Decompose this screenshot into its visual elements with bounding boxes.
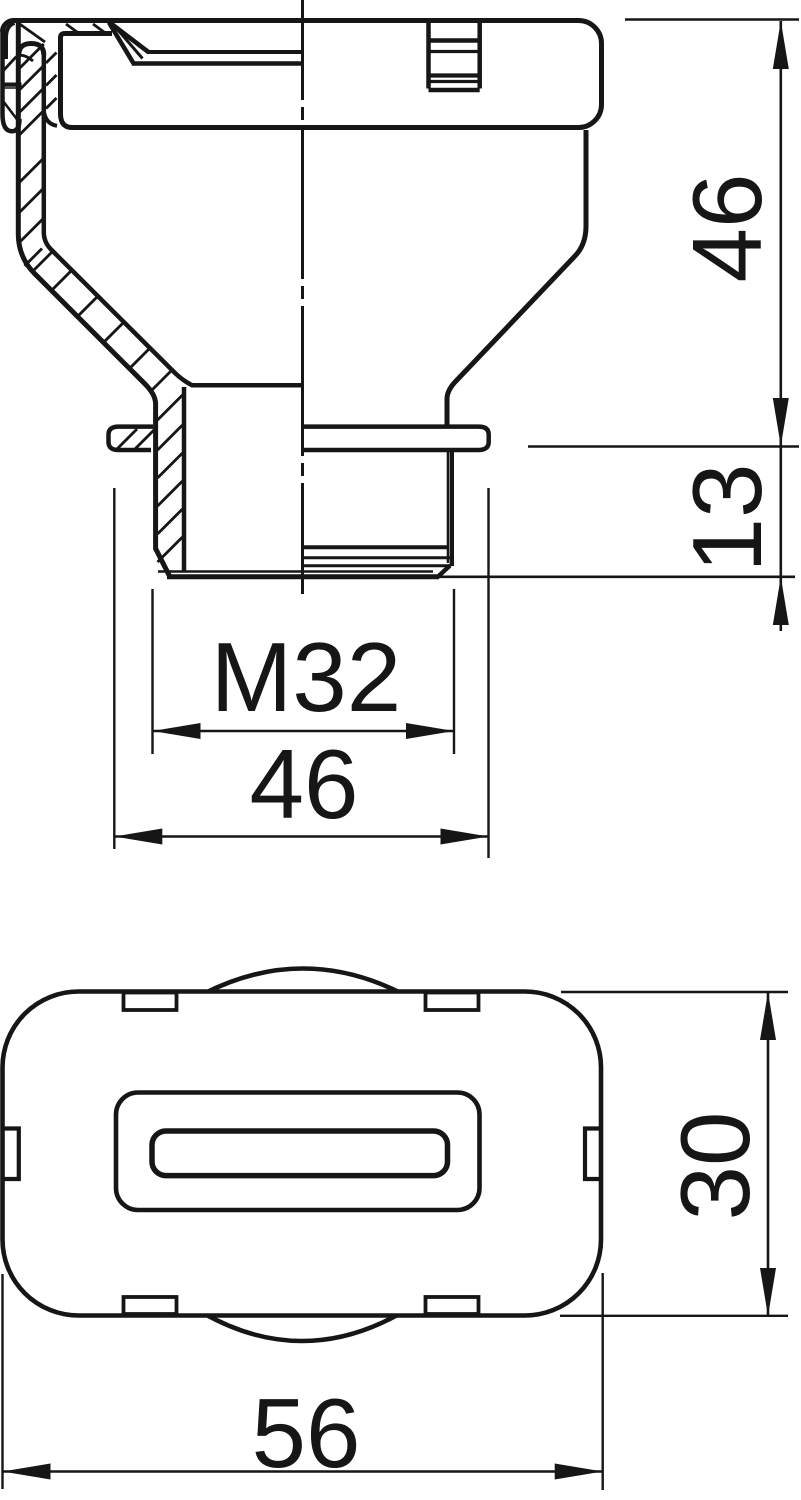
svg-text:30: 30: [660, 1111, 770, 1220]
svg-text:56: 56: [251, 1378, 360, 1488]
svg-text:13: 13: [672, 463, 782, 572]
svg-text:M32: M32: [211, 622, 402, 732]
svg-text:46: 46: [672, 173, 782, 282]
svg-text:46: 46: [249, 729, 358, 839]
